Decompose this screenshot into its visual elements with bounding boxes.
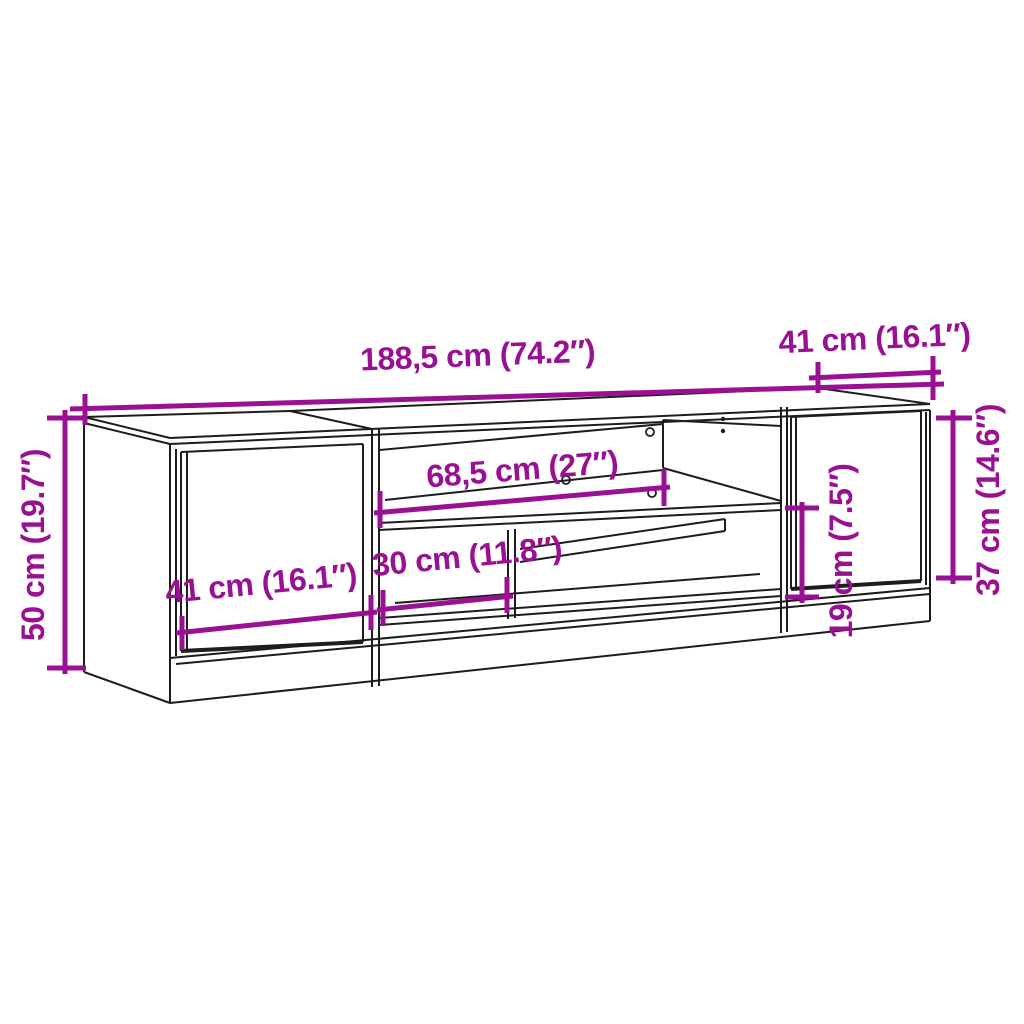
dim-label-left-door-width: 41 cm (16.1″) [164, 556, 359, 610]
furniture-dimension-diagram: 188,5 cm (74.2″) 41 cm (16.1″) 50 cm (19… [0, 0, 1024, 1024]
dim-right-door-height [936, 410, 972, 584]
dim-label-lower-compartment-height: 19 cm (7.5″) [823, 464, 859, 639]
dim-overall-height [47, 410, 86, 674]
left-side-panel [84, 417, 170, 703]
dim-label-upper-shelf-width: 68,5 cm (27″) [425, 444, 619, 495]
dim-lower-compartment-width [377, 577, 513, 626]
tv-stand-diagram-canvas: 188,5 cm (74.2″) 41 cm (16.1″) 50 cm (19… [0, 0, 1024, 1024]
plinth-base [170, 588, 930, 687]
dim-label-depth: 41 cm (16.1″) [778, 316, 971, 360]
dim-label-right-door-height: 37 cm (14.6″) [970, 404, 1006, 596]
dim-label-overall-height: 50 cm (19.7″) [15, 449, 51, 641]
bottom-panel [379, 574, 781, 625]
dim-label-overall-width: 188,5 cm (74.2″) [359, 333, 595, 378]
dim-label-lower-compartment-width: 30 cm (11.8″) [371, 529, 564, 583]
dimension-lines: 188,5 cm (74.2″) 41 cm (16.1″) 50 cm (19… [15, 316, 1006, 674]
